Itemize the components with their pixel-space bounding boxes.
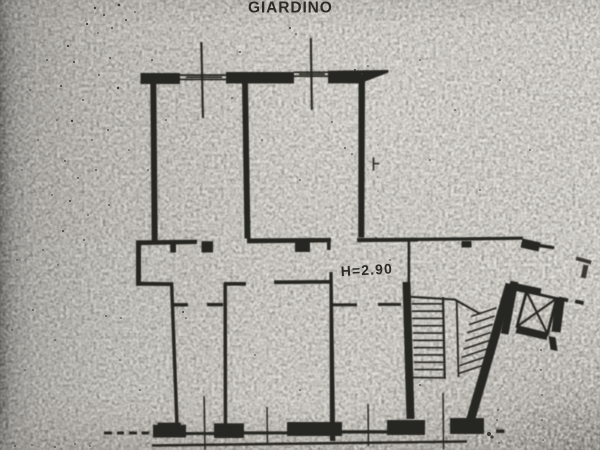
svg-text:H=2.90: H=2.90: [340, 260, 393, 279]
svg-text:GIARDINO: GIARDINO: [248, 0, 333, 16]
